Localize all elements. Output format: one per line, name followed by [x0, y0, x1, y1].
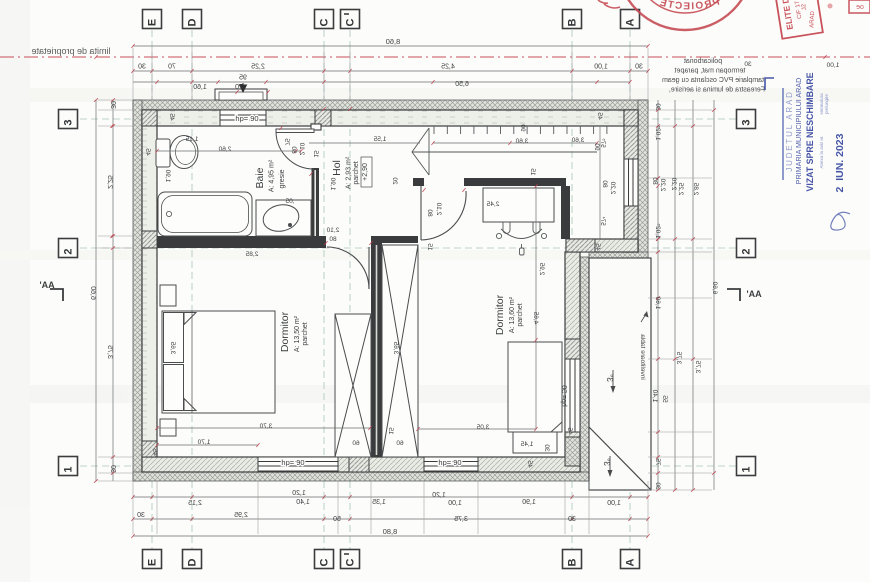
svg-text:90: 90: [519, 124, 526, 132]
svg-text:Anexa la aviz nr.: Anexa la aviz nr.: [819, 135, 824, 168]
svg-text:75: 75: [654, 458, 661, 466]
svg-text:B: B: [567, 558, 579, 566]
svg-text:3,60: 3,60: [571, 137, 584, 144]
svg-text:A: 4,95 m²: A: 4,95 m²: [269, 159, 276, 192]
svg-text:1,35: 1,35: [372, 499, 386, 506]
svg-text:1,55: 1,55: [373, 136, 386, 143]
svg-text:75: 75: [283, 138, 290, 146]
svg-text:30: 30: [109, 465, 116, 473]
svg-text:1,60: 1,60: [193, 84, 207, 91]
svg-text:80: 80: [290, 146, 297, 154]
svg-text:2,85: 2,85: [245, 251, 258, 258]
svg-text:A: 2,93 m²: A: 2,93 m²: [346, 156, 353, 189]
svg-text:Fereastra de lumina si aerisir: Fereastra de lumina si aerisire,: [669, 87, 765, 94]
svg-text:2,25: 2,25: [251, 64, 265, 71]
svg-text:30: 30: [109, 101, 116, 109]
svg-text:1,45: 1,45: [520, 441, 533, 448]
svg-text:2,95: 2,95: [234, 512, 248, 519]
svg-text:1,00: 1,00: [594, 64, 608, 71]
svg-text:1,90: 1,90: [522, 499, 536, 506]
svg-text:6,60: 6,60: [89, 286, 96, 300]
svg-text:2: 2: [63, 248, 75, 254]
svg-text:3,65: 3,65: [392, 341, 399, 354]
svg-text:Hol: Hol: [331, 160, 343, 176]
svg-text:1,00: 1,00: [826, 62, 839, 69]
svg-text:2,25: 2,25: [677, 182, 684, 195]
svg-text:JUDETUL ARAD: JUDETUL ARAD: [785, 90, 794, 171]
svg-text:invelitoare tabla: invelitoare tabla: [639, 334, 646, 380]
svg-text:2,20: 2,20: [670, 177, 677, 190]
svg-text:Dormitor: Dormitor: [494, 294, 506, 335]
svg-text:30: 30: [568, 516, 576, 523]
svg-text:hp= 50: hp= 50: [560, 385, 567, 407]
svg-text:prelungire: prelungire: [824, 93, 829, 114]
svg-text:limita de proprietate: limita de proprietate: [31, 46, 110, 56]
svg-text:2,10: 2,10: [326, 227, 339, 234]
svg-text:2: 2: [741, 248, 753, 254]
svg-text:20: 20: [391, 177, 398, 185]
svg-text:60: 60: [396, 440, 404, 447]
svg-text:1,00: 1,00: [448, 500, 462, 507]
svg-text:30: 30: [635, 64, 643, 71]
svg-text:2,15: 2,15: [188, 500, 202, 507]
svg-text:,05: ,05: [285, 198, 294, 205]
svg-text:C: C: [345, 18, 357, 26]
svg-text:45: 45: [566, 427, 573, 435]
svg-text:2,20: 2,20: [659, 178, 666, 191]
svg-text:C: C: [319, 558, 331, 566]
svg-text:2,60: 2,60: [218, 146, 231, 153]
svg-text:1,90: 1,90: [329, 177, 336, 190]
svg-text:50: 50: [333, 516, 341, 523]
svg-text:80: 80: [651, 177, 658, 185]
svg-text:B: B: [567, 18, 579, 26]
svg-text:3,75: 3,75: [694, 360, 701, 373]
svg-text:3,75: 3,75: [454, 516, 468, 523]
svg-text:C: C: [345, 558, 357, 566]
svg-text:gresie: gresie: [279, 169, 286, 188]
svg-text:1,40: 1,40: [296, 499, 310, 506]
svg-text:15: 15: [312, 150, 319, 158]
svg-text:tamplarie PVC osclanta cu geam: tamplarie PVC osclanta cu geam: [662, 77, 764, 84]
svg-text:VIZAT SPRE NESCHIMBARE: VIZAT SPRE NESCHIMBARE: [805, 72, 815, 191]
svg-text:1,40: 1,40: [651, 389, 658, 402]
svg-text:oe: oe: [856, 4, 864, 11]
svg-text:1: 1: [741, 466, 753, 472]
svg-text:E: E: [147, 559, 159, 566]
svg-text:4,65: 4,65: [532, 311, 539, 324]
svg-text:E: E: [147, 19, 159, 26]
svg-text:2,45: 2,45: [486, 201, 499, 208]
svg-text:A: A: [625, 558, 637, 566]
svg-text:A: A: [625, 18, 637, 26]
svg-text:A: 13,50 m²: A: 13,50 m²: [294, 315, 301, 352]
svg-text:1,02⁵: 1,02⁵: [654, 223, 661, 239]
svg-text:45: 45: [596, 112, 603, 120]
svg-text:15: 15: [529, 168, 536, 176]
svg-text:termopan mat, parapet: termopan mat, parapet: [675, 68, 746, 75]
svg-text:45: 45: [526, 460, 533, 468]
svg-text:2,20: 2,20: [609, 181, 616, 194]
svg-text:2,10: 2,10: [298, 142, 305, 155]
svg-text:parchet: parchet: [302, 322, 309, 345]
svg-text:3,65: 3,65: [169, 341, 176, 354]
svg-text:hp= 90: hp= 90: [235, 114, 258, 123]
svg-text:3,60: 3,60: [515, 138, 528, 145]
svg-text:6,50: 6,50: [455, 81, 469, 88]
svg-text:D: D: [187, 558, 199, 566]
svg-text:+2,90: +2,90: [362, 163, 369, 181]
svg-text:1,90: 1,90: [164, 169, 171, 182]
svg-text:4,25: 4,25: [441, 64, 455, 71]
svg-text:30: 30: [744, 61, 752, 68]
svg-text:3: 3: [63, 119, 75, 125]
svg-text:3,75: 3,75: [675, 351, 682, 364]
svg-text:8,60: 8,60: [386, 37, 401, 46]
svg-text:1: 1: [63, 466, 75, 472]
svg-text:hp= 90: hp= 90: [438, 458, 461, 467]
svg-text:80: 80: [426, 209, 433, 217]
svg-text:45: 45: [594, 243, 601, 251]
svg-text:2,10: 2,10: [435, 202, 442, 215]
svg-text:1,02⁵: 1,02⁵: [654, 125, 661, 141]
svg-text:Baie: Baie: [254, 167, 266, 188]
svg-text:Dormitor: Dormitor: [279, 311, 291, 352]
svg-text:ARAD: ARAD: [809, 10, 816, 28]
svg-text:95: 95: [239, 75, 247, 82]
svg-text:3: 3: [741, 119, 753, 125]
svg-text:80: 80: [329, 236, 337, 243]
svg-text:60: 60: [352, 440, 360, 447]
svg-text:1,20: 1,20: [432, 492, 446, 499]
svg-text:2,85: 2,85: [692, 182, 699, 195]
svg-text:30: 30: [654, 103, 661, 111]
svg-text:8,80: 8,80: [383, 527, 398, 536]
svg-text:1,60: 1,60: [654, 296, 661, 309]
svg-text:30: 30: [138, 64, 146, 71]
svg-text:30: 30: [543, 444, 550, 452]
svg-text:1,70: 1,70: [197, 439, 210, 446]
svg-text:AA': AA': [746, 289, 761, 299]
svg-text:2,95: 2,95: [538, 262, 545, 275]
svg-text:45: 45: [151, 448, 158, 456]
svg-text:1,20: 1,20: [292, 490, 306, 497]
svg-text:70: 70: [235, 84, 243, 91]
svg-text:30: 30: [137, 512, 145, 519]
svg-text:70: 70: [168, 64, 176, 71]
svg-text:3,75: 3,75: [106, 345, 113, 359]
svg-text:57⁵: 57⁵: [599, 138, 606, 148]
svg-text:policarbonat: policarbonat: [684, 58, 722, 65]
svg-text:80: 80: [601, 180, 608, 188]
svg-text:45: 45: [144, 148, 151, 156]
svg-text:parchet: parchet: [517, 303, 524, 326]
svg-text:2,25: 2,25: [106, 175, 113, 189]
svg-text:PRIMARIA MUNICIPIULUI ARAD: PRIMARIA MUNICIPIULUI ARAD: [794, 78, 803, 185]
svg-text:A: 13,60 m²: A: 13,60 m²: [509, 296, 516, 333]
svg-text:hp= 90: hp= 90: [281, 458, 304, 467]
svg-text:57⁴: 57⁴: [599, 216, 606, 226]
svg-text:55: 55: [661, 395, 668, 403]
svg-text:2 IUN. 2023: 2 IUN. 2023: [834, 133, 846, 192]
svg-text:6,60: 6,60: [711, 281, 718, 294]
svg-text:90: 90: [593, 143, 600, 151]
svg-text:45: 45: [168, 113, 175, 121]
svg-text:15: 15: [426, 243, 433, 251]
svg-text:1,15: 1,15: [185, 136, 198, 143]
svg-text:3,70: 3,70: [259, 423, 272, 430]
svg-text:D: D: [187, 18, 199, 26]
svg-text:parchet: parchet: [353, 161, 360, 184]
svg-text:1,00: 1,00: [607, 500, 621, 507]
svg-text:3,05: 3,05: [476, 424, 489, 431]
svg-text:30: 30: [654, 482, 661, 490]
svg-text:C: C: [319, 18, 331, 26]
svg-text:15: 15: [387, 427, 394, 435]
